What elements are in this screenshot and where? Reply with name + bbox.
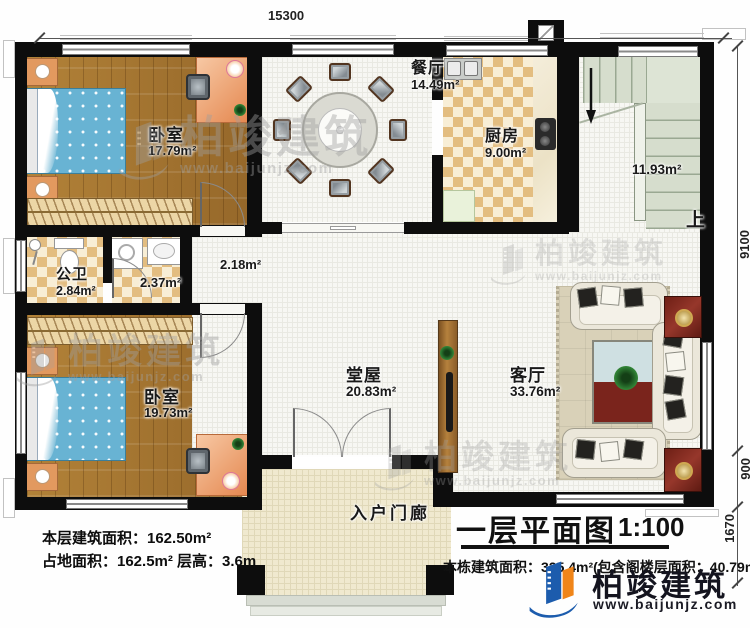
room-name: 入户门廊	[350, 504, 430, 524]
desk-lamp	[222, 472, 240, 490]
room-area: 20.83m²	[346, 384, 396, 400]
bed-sheet	[38, 378, 58, 460]
wall-bedroom-top-east	[247, 42, 262, 232]
nightstand	[26, 463, 58, 491]
sill-bottom-left	[3, 478, 15, 518]
room-area: 11.93m²	[632, 162, 682, 178]
stair-direction-arrow	[584, 66, 598, 126]
label-hall: 堂屋 20.83m²	[298, 366, 394, 384]
burner	[540, 122, 550, 132]
room-name: 厨房	[485, 128, 519, 146]
room-area: 9.00m²	[485, 146, 526, 161]
drawing-scale: 1:100	[618, 512, 685, 543]
dining-chair	[389, 119, 407, 141]
stair-direction: 上	[686, 210, 706, 232]
coffee-table-plant	[614, 366, 638, 390]
window-bedroom-top-north	[62, 44, 190, 55]
floor-plan-canvas: 卧室 17.79m² 公卫 2.84m² 2.37m² 2.18m² 卧室 19…	[0, 0, 750, 628]
entry-door-opening	[293, 457, 391, 467]
floor-stats: 本层建筑面积：162.50m² 占地面积：162.5m² 层高：3.6m	[42, 527, 256, 574]
bed-sheet	[38, 89, 58, 173]
desk-lamp	[226, 60, 244, 78]
dining-chair	[329, 179, 351, 197]
desk-chair	[186, 448, 210, 474]
room-area: 19.73m²	[144, 406, 192, 421]
brand-website: www.baijunjz.com	[593, 596, 738, 612]
toilet-tank	[54, 238, 84, 249]
porch-step-2	[250, 606, 442, 616]
wall-dining-south-left	[250, 222, 282, 234]
nightstand	[26, 347, 58, 375]
room-name: 公卫	[56, 266, 88, 283]
side-table-top	[664, 296, 702, 338]
passage-center-mark	[330, 226, 356, 230]
sofa-cushion	[600, 285, 621, 306]
room-name: 堂屋	[346, 366, 382, 386]
stair-landing	[646, 57, 700, 103]
window-bedroom-bottom-west	[16, 372, 26, 454]
dim-right-mid: 900	[738, 458, 750, 480]
dim-right-upper: 9100	[737, 230, 750, 259]
porch-floor	[242, 469, 451, 595]
room-name: 客厅	[510, 366, 546, 386]
sill-top-left	[3, 40, 15, 78]
bed-headboard	[27, 89, 38, 173]
dimension-line-top	[40, 38, 732, 39]
title-underline	[461, 545, 669, 549]
kitchen-counter-green	[443, 190, 475, 222]
label-kitchen: 厨房 9.00m²	[442, 128, 528, 146]
sofa-cushion	[623, 439, 644, 460]
room-name: 餐厅	[411, 60, 445, 78]
burner	[540, 136, 550, 146]
window-kitchen-north	[446, 45, 548, 56]
porch-step-1	[246, 595, 446, 606]
room-area: 2.84m²	[56, 284, 96, 298]
wall-bath-divider	[103, 237, 112, 283]
wall-bedroom-bottom-east	[247, 303, 262, 510]
wall-kitchen-stair	[557, 42, 579, 232]
wall-laundry-hallway	[180, 232, 192, 303]
bedroom-top-door-opening	[200, 226, 245, 236]
window-stair-north	[618, 46, 698, 57]
wardrobe-bottom	[27, 317, 193, 345]
sink-basin-right	[464, 61, 478, 76]
desk-chair	[186, 74, 210, 100]
window-dining-north	[292, 44, 394, 55]
sink-basin	[153, 243, 175, 259]
window-bedroom-bottom-south	[66, 499, 188, 509]
room-area: 14.49m²	[411, 78, 459, 93]
nightstand	[26, 58, 58, 86]
bed-headboard	[27, 378, 38, 460]
room-area: 2.18m²	[220, 258, 261, 273]
sofa-cushion	[599, 441, 620, 462]
label-dining: 餐厅 14.49m²	[368, 60, 454, 78]
dim-right-lower: 1670	[722, 514, 737, 543]
shower-head	[29, 239, 41, 251]
dining-table-center	[336, 126, 344, 134]
wall-hall-south-right	[392, 455, 433, 469]
stats-line1: 本层建筑面积：162.50m²	[42, 527, 256, 550]
dining-chair	[273, 119, 291, 141]
room-area: 33.76m²	[510, 384, 560, 400]
wardrobe-top	[27, 198, 193, 226]
room-area: 2.37m²	[140, 276, 181, 291]
sofa-cushion	[664, 398, 686, 420]
brand-logo-icon	[516, 556, 590, 622]
window-living-east	[702, 342, 712, 450]
wall-hall-south-left	[247, 455, 292, 469]
window-living-south	[556, 494, 684, 504]
dining-chair	[329, 63, 351, 81]
label-bedroom-bottom: 卧室 19.73m²	[94, 388, 194, 406]
wall-kitchen-west-lower	[432, 155, 443, 222]
sill-west-bath	[3, 238, 15, 294]
label-bedroom-top: 卧室 17.79m²	[98, 126, 198, 144]
sofa-cushion	[665, 351, 686, 372]
label-living: 客厅 33.76m²	[462, 366, 558, 384]
room-area: 17.79m²	[148, 144, 196, 159]
drawing-title: 一层平面图	[456, 506, 616, 550]
side-table-bottom	[664, 448, 702, 492]
desk-plant	[234, 104, 246, 116]
tv-plant	[440, 346, 454, 360]
stats-line2: 占地面积：162.5m² 层高：3.6m	[42, 550, 256, 573]
sofa-cushion	[577, 287, 598, 308]
dim-top-width: 15300	[268, 8, 304, 23]
sofa-cushion	[663, 375, 684, 396]
wall-kitchen-south	[404, 222, 569, 234]
sofa-cushion	[623, 287, 644, 308]
sofa-cushion	[575, 439, 596, 460]
tv	[446, 372, 453, 432]
desk-plant	[232, 438, 244, 450]
label-bathroom: 公卫 2.84m²	[18, 266, 94, 284]
